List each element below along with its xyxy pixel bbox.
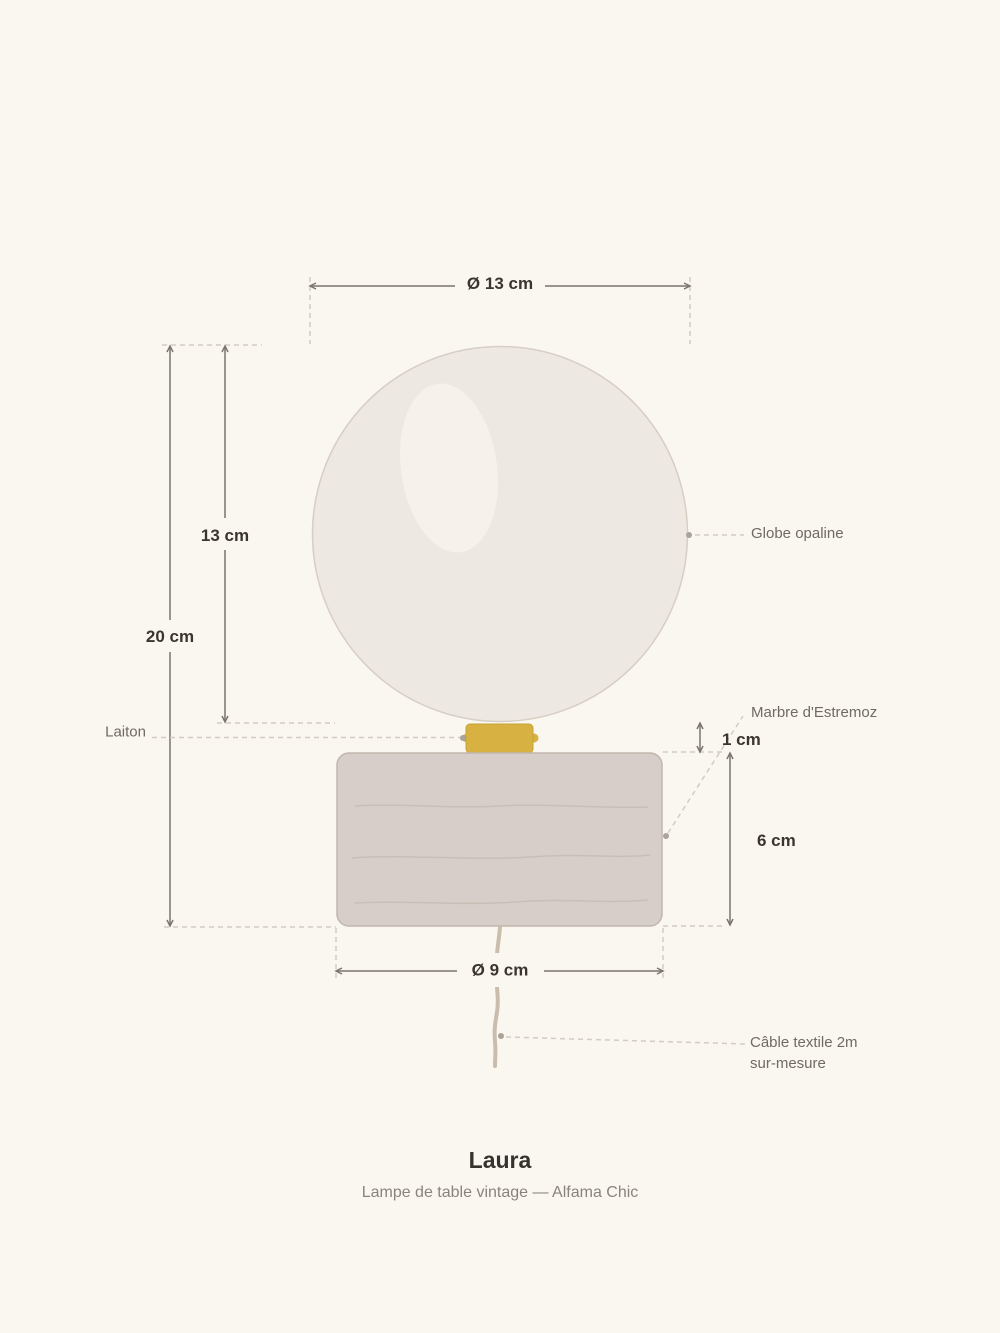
svg-text:1 cm: 1 cm [722,730,761,749]
svg-text:Câble textile 2m: Câble textile 2m [750,1034,858,1051]
svg-text:Ø 9 cm: Ø 9 cm [472,961,529,980]
svg-text:13 cm: 13 cm [201,526,249,545]
svg-text:6 cm: 6 cm [757,831,796,850]
svg-text:Marbre d'Estremoz: Marbre d'Estremoz [751,704,877,721]
svg-text:Laura: Laura [469,1147,532,1173]
svg-text:Lampe de table vintage — Alfam: Lampe de table vintage — Alfama Chic [362,1184,639,1201]
svg-text:Ø 13 cm: Ø 13 cm [467,274,533,293]
svg-text:Laiton: Laiton [105,724,146,741]
svg-text:Globe opaline: Globe opaline [751,525,844,542]
svg-text:sur-mesure: sur-mesure [750,1055,826,1072]
svg-text:20 cm: 20 cm [146,627,194,646]
